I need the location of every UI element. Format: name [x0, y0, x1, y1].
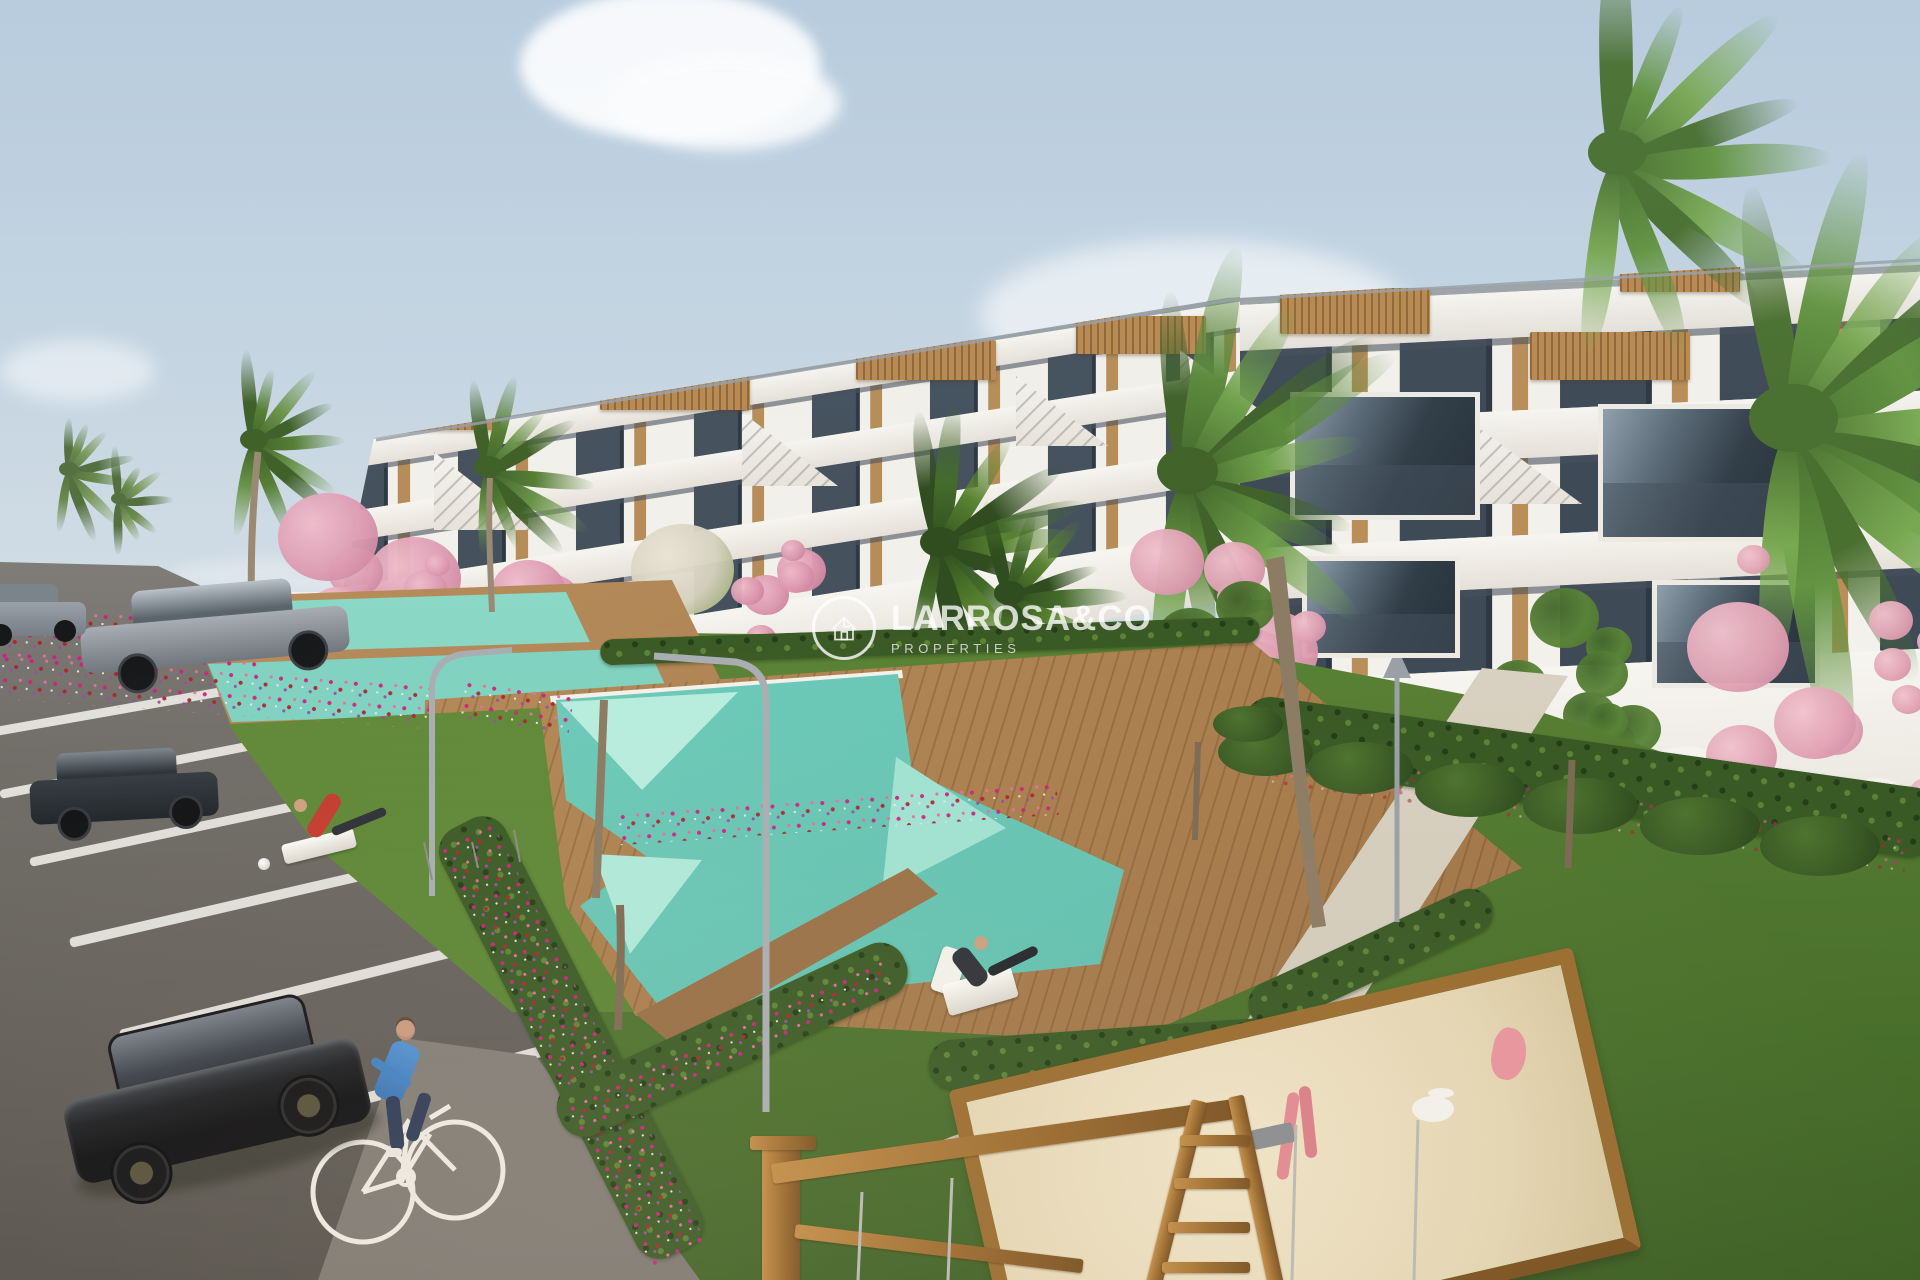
watermark-tagline: PROPERTIES	[891, 641, 1152, 656]
watermark-brand: LARROSA&CO	[891, 601, 1152, 636]
property-render-photo: LARROSA&CO PROPERTIES	[0, 0, 1920, 1280]
watermark-house-icon	[812, 596, 876, 660]
watermark: LARROSA&CO PROPERTIES	[812, 596, 1152, 660]
watermark-text: LARROSA&CO PROPERTIES	[891, 601, 1152, 656]
